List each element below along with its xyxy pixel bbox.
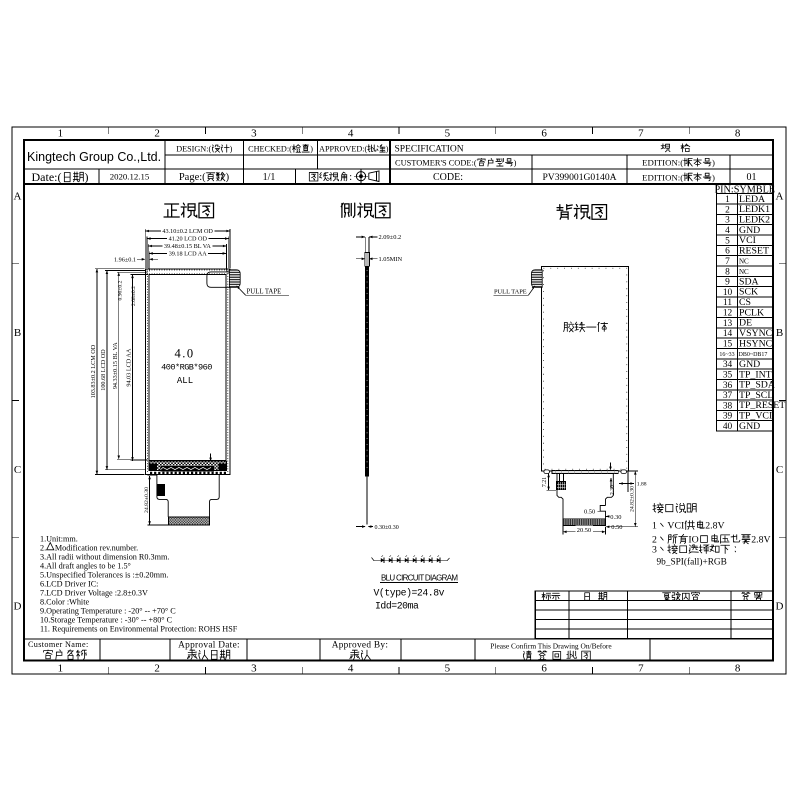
- svg-text:EDITION:(: EDITION:(: [642, 158, 683, 168]
- svg-text:B: B: [14, 327, 21, 339]
- svg-text:Page:(: Page:(: [179, 172, 206, 183]
- svg-text:2: 2: [154, 128, 160, 140]
- svg-text:01: 01: [747, 172, 757, 183]
- svg-text:4: 4: [348, 128, 354, 140]
- svg-text:2.8V: 2.8V: [751, 534, 770, 545]
- svg-text:NC: NC: [739, 268, 749, 276]
- svg-text:Approval Date:: Approval Date:: [178, 641, 240, 651]
- svg-text:7.LCD Driver Voltage :2.8±0.3V: 7.LCD Driver Voltage :2.8±0.3V: [40, 588, 148, 597]
- svg-text:39.18 LCD AA: 39.18 LCD AA: [169, 250, 208, 257]
- svg-text:3: 3: [251, 663, 257, 675]
- svg-text:100.68 LCD OD: 100.68 LCD OD: [100, 349, 107, 391]
- svg-text:1: 1: [58, 128, 64, 140]
- svg-text:SPECIFICATION: SPECIFICATION: [395, 145, 464, 155]
- svg-text:GND: GND: [739, 421, 760, 432]
- svg-text:CHECKED:(: CHECKED:(: [248, 145, 292, 154]
- svg-text:103.83±0.2 LCM OD: 103.83±0.2 LCM OD: [90, 344, 97, 398]
- svg-text:1: 1: [652, 521, 657, 532]
- svg-text:4: 4: [348, 663, 354, 675]
- svg-text:10.Storage Temperature : -30°: 10.Storage Temperature : -30° -- +80° C: [40, 615, 173, 624]
- svg-text:IO: IO: [688, 534, 698, 545]
- svg-text:8.Color :White: 8.Color :White: [40, 597, 89, 606]
- svg-text:0.30±0.30: 0.30±0.30: [375, 525, 399, 531]
- svg-text:1: 1: [58, 663, 64, 675]
- svg-text:1.Unit:mm.: 1.Unit:mm.: [40, 534, 78, 543]
- svg-text:0.50: 0.50: [611, 524, 622, 531]
- svg-text:5.Unspecified Tolerances is :±: 5.Unspecified Tolerances is :±0.20mm.: [40, 570, 168, 579]
- svg-text:0.50: 0.50: [584, 508, 595, 515]
- svg-text:16~33: 16~33: [719, 352, 734, 358]
- svg-text:24.82±0.30: 24.82±0.30: [144, 487, 150, 513]
- svg-text:CUSTOMER'S CODE:(: CUSTOMER'S CODE:(: [395, 159, 477, 168]
- svg-text:1.88: 1.88: [637, 482, 647, 488]
- svg-text:6.LCD Driver IC:: 6.LCD Driver IC:: [40, 579, 98, 588]
- svg-text:V(type)=24.8v: V(type)=24.8v: [374, 588, 445, 599]
- svg-text:2.8V: 2.8V: [705, 521, 724, 532]
- svg-text:): ): [712, 158, 715, 168]
- svg-text:): ): [84, 170, 88, 184]
- svg-text:7.21: 7.21: [542, 477, 548, 487]
- svg-text:5: 5: [445, 128, 451, 140]
- svg-text:Customer Name:: Customer Name:: [28, 640, 89, 649]
- svg-text:4.All draft angles to be 1.5°: 4.All draft angles to be 1.5°: [40, 561, 131, 570]
- svg-text:2020.12.15: 2020.12.15: [110, 172, 150, 182]
- svg-text:HSYNC: HSYNC: [739, 338, 772, 349]
- svg-text:APPROVED:(: APPROVED:(: [319, 145, 367, 154]
- svg-text:A: A: [776, 190, 784, 202]
- svg-text:D: D: [776, 601, 784, 613]
- svg-text:Modification rev.number.: Modification rev.number.: [55, 543, 138, 552]
- svg-text:): ): [230, 145, 233, 154]
- svg-text:24.82±0.30: 24.82±0.30: [629, 486, 635, 512]
- svg-text:DB0~DB17: DB0~DB17: [739, 352, 768, 358]
- svg-text:2.: 2.: [40, 543, 46, 552]
- svg-text:9.Operating Temperature : -20°: 9.Operating Temperature : -20° -- +70° C: [40, 606, 176, 615]
- svg-text:2.08±0.2: 2.08±0.2: [131, 286, 137, 306]
- svg-text:C: C: [14, 464, 21, 476]
- svg-text:Idd=20ma: Idd=20ma: [375, 601, 419, 612]
- svg-text:DESIGN:(: DESIGN:(: [176, 145, 211, 154]
- svg-text:39.48±0.15 BL VA: 39.48±0.15 BL VA: [164, 243, 211, 250]
- svg-text:D: D: [14, 601, 22, 613]
- svg-text:PV399001G0140A: PV399001G0140A: [542, 172, 616, 183]
- svg-text:8: 8: [735, 128, 741, 140]
- svg-text:BLU CIRCUIT DIAGRAM: BLU CIRCUIT DIAGRAM: [381, 573, 458, 582]
- svg-text:B: B: [776, 327, 783, 339]
- svg-text:): ): [514, 159, 517, 168]
- svg-text:20.50: 20.50: [577, 527, 591, 534]
- svg-text:Date:(: Date:(: [32, 170, 62, 184]
- svg-text:Please Confirm This Drawing On: Please Confirm This Drawing On/Before: [490, 641, 612, 650]
- svg-text:VCI: VCI: [667, 521, 684, 532]
- svg-text:): ): [386, 145, 389, 154]
- svg-text:43.10±0.2 LCM OD: 43.10±0.2 LCM OD: [162, 228, 213, 235]
- svg-text:): ): [712, 172, 715, 182]
- svg-text:): ): [310, 145, 313, 154]
- svg-text:3.All radii without dimension: 3.All radii without dimension R0.3mm.: [40, 552, 169, 561]
- svg-text:NC: NC: [739, 258, 749, 266]
- svg-text:2: 2: [154, 663, 160, 675]
- svg-text:5: 5: [445, 663, 451, 675]
- svg-text:8: 8: [735, 663, 741, 675]
- svg-text:2.09±0.2: 2.09±0.2: [379, 234, 402, 241]
- svg-text:7: 7: [638, 663, 644, 675]
- svg-text:7: 7: [638, 128, 644, 140]
- svg-text:PULL TAPE: PULL TAPE: [494, 288, 527, 295]
- svg-text:9b_SPI(fall)+RGB: 9b_SPI(fall)+RGB: [657, 556, 727, 567]
- svg-text:3: 3: [652, 545, 657, 556]
- svg-text:EDITION:(: EDITION:(: [642, 172, 683, 182]
- svg-text:1/1: 1/1: [263, 172, 276, 183]
- svg-text:0.30: 0.30: [610, 514, 621, 521]
- svg-text:6: 6: [541, 128, 547, 140]
- svg-text:400*RGB*960: 400*RGB*960: [161, 363, 212, 373]
- svg-text:1.05MIN: 1.05MIN: [379, 256, 403, 263]
- svg-text:Kingtech Group Co.,Ltd.: Kingtech Group Co.,Ltd.: [27, 150, 161, 164]
- svg-text:PULL TAPE: PULL TAPE: [247, 288, 282, 295]
- svg-text:0.96±0.2: 0.96±0.2: [118, 280, 124, 300]
- svg-text:40: 40: [723, 422, 733, 432]
- svg-text:CODE:: CODE:: [433, 172, 463, 183]
- svg-text:A: A: [14, 190, 22, 202]
- svg-text::: :: [349, 172, 352, 183]
- svg-text:94.33±0.15 BL VA: 94.33±0.15 BL VA: [112, 342, 119, 389]
- svg-text:6: 6: [541, 663, 547, 675]
- svg-text:1.96±0.1: 1.96±0.1: [114, 256, 136, 263]
- svg-text:Approved By:: Approved By:: [332, 641, 389, 651]
- svg-text:2.30: 2.30: [610, 485, 616, 495]
- svg-text:RESET: RESET: [739, 245, 769, 256]
- svg-text:94.03 LCD AA: 94.03 LCD AA: [126, 348, 133, 387]
- svg-text:ALL: ALL: [177, 376, 193, 386]
- svg-text:3: 3: [251, 128, 257, 140]
- svg-text:11. Requirements on Environmen: 11. Requirements on Environmental Protec…: [40, 625, 238, 634]
- svg-text:41.20 LCD OD: 41.20 LCD OD: [169, 236, 208, 243]
- svg-text:): ): [226, 172, 230, 183]
- svg-text:C: C: [776, 464, 783, 476]
- svg-text:4.0: 4.0: [174, 347, 194, 361]
